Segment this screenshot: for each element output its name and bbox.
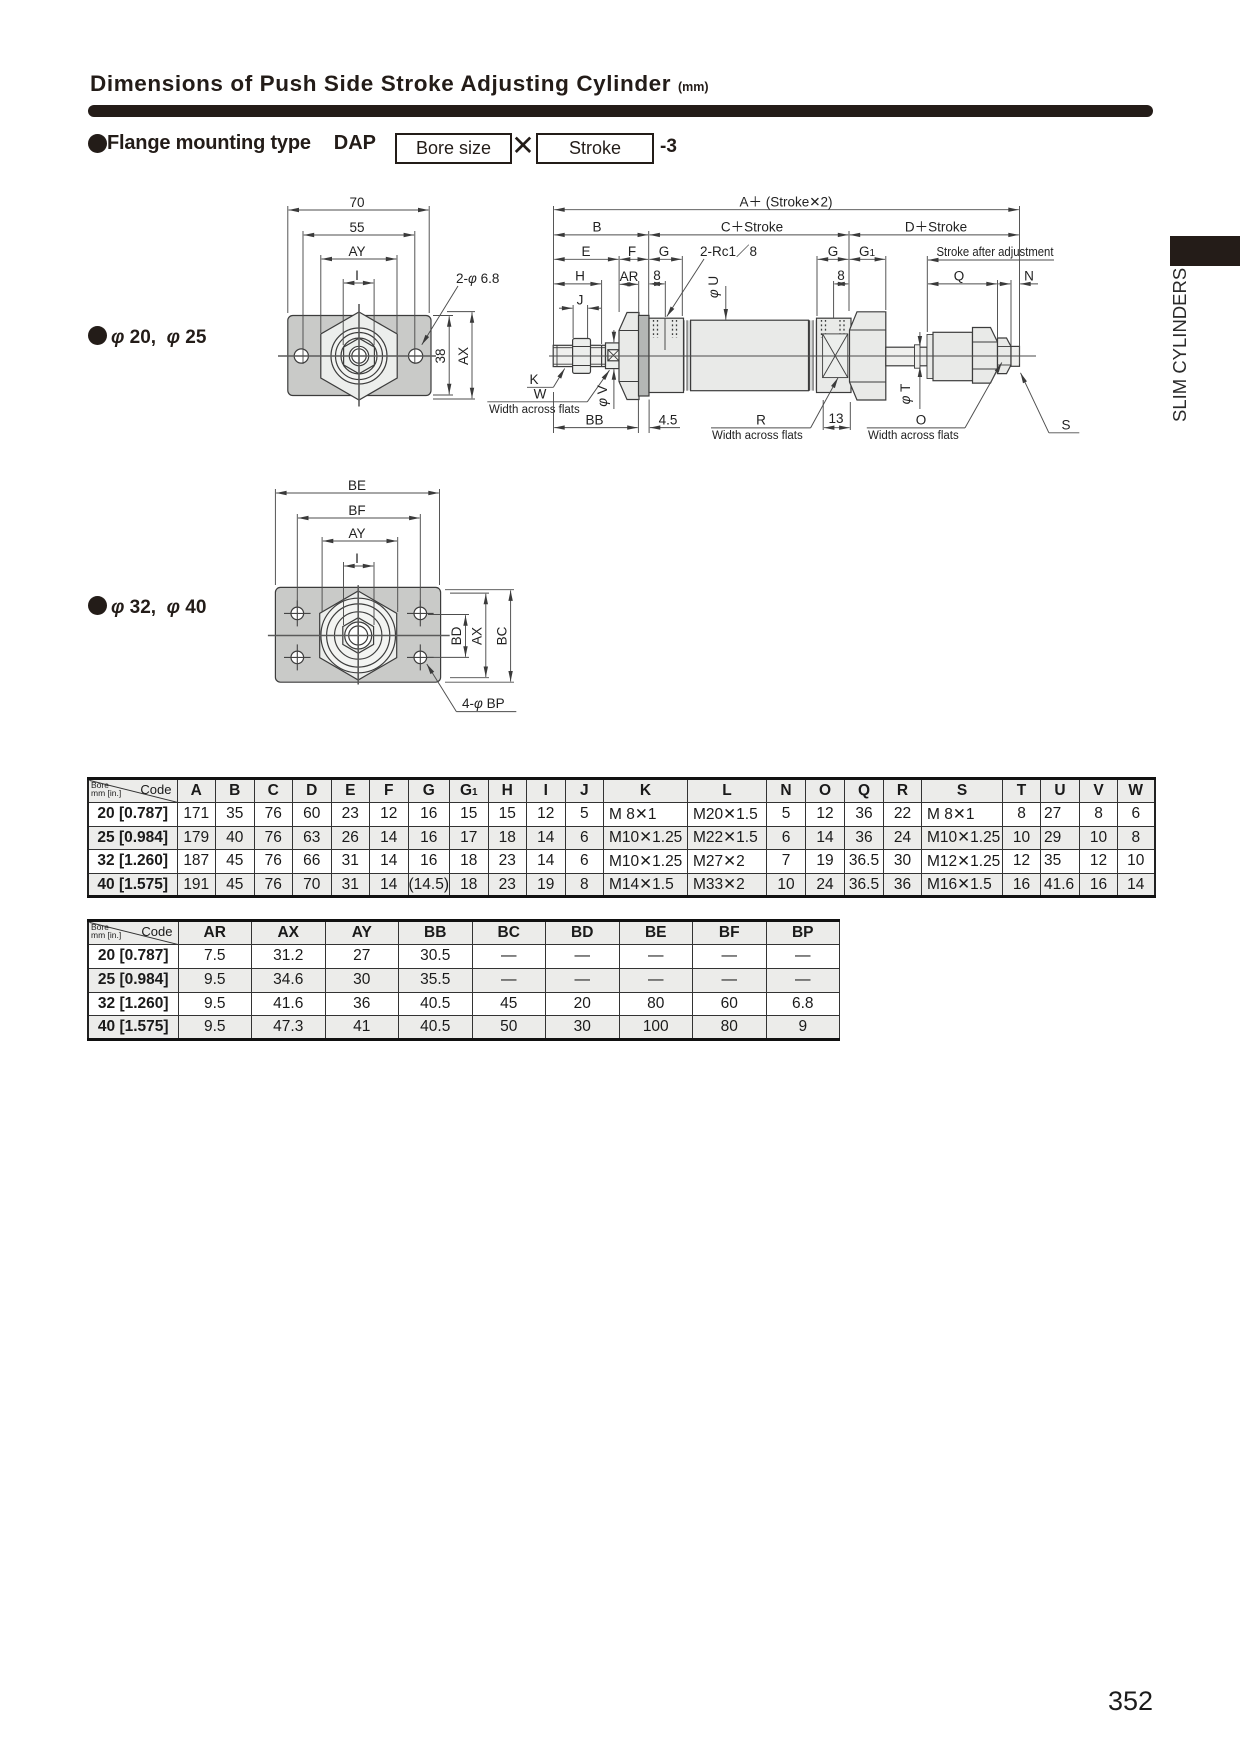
svg-text:K: K xyxy=(529,372,538,387)
svg-text:S: S xyxy=(1061,418,1070,433)
svg-text:Width across flats: Width across flats xyxy=(712,430,803,442)
svg-text:N: N xyxy=(1024,269,1034,284)
svg-text:C＋Stroke: C＋Stroke xyxy=(721,220,783,235)
svg-text:G: G xyxy=(828,244,839,259)
svg-text:W: W xyxy=(534,387,547,402)
svg-text:2-Rc1／8: 2-Rc1／8 xyxy=(700,244,757,259)
svg-text:4.5: 4.5 xyxy=(659,413,678,428)
svg-text:φ T: φ T xyxy=(898,384,913,405)
svg-text:BD: BD xyxy=(449,626,464,645)
svg-text:AX: AX xyxy=(470,627,485,645)
svg-text:BE: BE xyxy=(348,478,366,493)
svg-text:A＋ (Stroke✕2): A＋ (Stroke✕2) xyxy=(739,195,832,210)
svg-text:Width across flats: Width across flats xyxy=(868,430,959,442)
svg-text:Q: Q xyxy=(954,269,965,284)
svg-text:AY: AY xyxy=(348,244,365,259)
svg-text:φ V: φ V xyxy=(595,385,610,407)
svg-text:13: 13 xyxy=(828,411,843,426)
svg-text:φ U: φ U xyxy=(706,276,721,298)
svg-text:BC: BC xyxy=(495,626,510,645)
svg-text:8: 8 xyxy=(653,268,661,283)
svg-text:2-φ 6.8: 2-φ 6.8 xyxy=(456,271,499,286)
svg-text:G1: G1 xyxy=(859,244,876,259)
svg-text:4-φ BP: 4-φ BP xyxy=(462,696,505,711)
svg-text:H: H xyxy=(575,269,585,284)
svg-text:J: J xyxy=(577,293,584,308)
svg-text:R: R xyxy=(756,413,766,428)
svg-text:BF: BF xyxy=(348,503,365,518)
svg-text:I: I xyxy=(355,551,359,566)
svg-text:I: I xyxy=(355,268,359,283)
svg-text:8: 8 xyxy=(837,268,845,283)
svg-text:38: 38 xyxy=(433,348,448,363)
svg-text:Width across flats: Width across flats xyxy=(489,404,580,416)
svg-text:E: E xyxy=(581,244,590,259)
svg-text:F: F xyxy=(628,244,636,259)
svg-text:O: O xyxy=(916,413,927,428)
svg-text:70: 70 xyxy=(349,195,364,210)
svg-text:BB: BB xyxy=(585,413,603,428)
svg-text:AR: AR xyxy=(620,269,639,284)
svg-text:AY: AY xyxy=(348,526,365,541)
svg-text:Stroke after adjustment: Stroke after adjustment xyxy=(937,244,1054,259)
svg-text:G: G xyxy=(659,244,670,259)
svg-text:B: B xyxy=(592,220,601,235)
svg-text:AX: AX xyxy=(456,347,471,365)
svg-text:55: 55 xyxy=(349,220,364,235)
svg-text:D＋Stroke: D＋Stroke xyxy=(905,220,967,235)
